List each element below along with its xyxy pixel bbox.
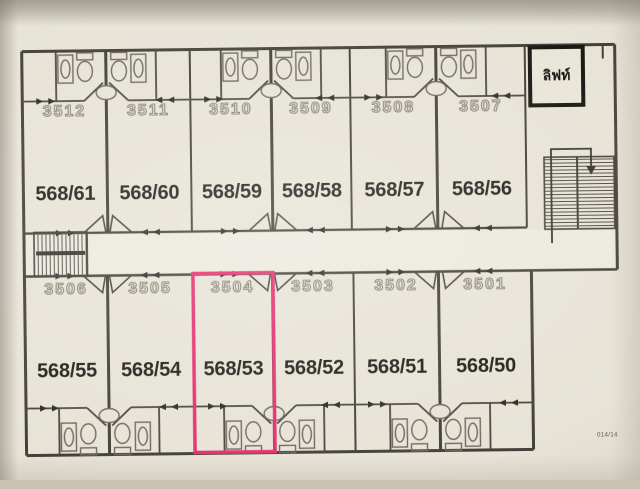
- room-number: 3510: [190, 101, 271, 120]
- unit-number: 568/60: [107, 182, 191, 206]
- unit-number: 568/55: [25, 360, 108, 384]
- room-number: 3503: [272, 278, 353, 297]
- elevator-label: ลิฟท์: [530, 47, 584, 106]
- unit-number: 568/58: [272, 180, 351, 204]
- room-3502: 3502 568/51: [353, 272, 440, 452]
- floor-plan: 3512 568/61 3511 568/60 3510 568/59 3509…: [0, 0, 640, 484]
- unit-number: 568/51: [354, 356, 439, 380]
- room-number: 3504: [192, 279, 272, 298]
- right-staircase: [544, 148, 615, 243]
- room-number: 3509: [271, 100, 350, 119]
- room-3511: 3511 568/60: [106, 50, 192, 233]
- room-number: 3502: [353, 277, 438, 296]
- room-3510: 3510 568/59: [190, 49, 273, 232]
- scanned-floorplan-photo: 3512 568/61 3511 568/60 3510 568/59 3509…: [0, 0, 640, 480]
- room-3503: 3503 568/52: [272, 273, 355, 453]
- room-3507: 3507 568/56: [436, 45, 527, 228]
- room-number: 3507: [436, 97, 525, 116]
- unit-number: 568/56: [437, 177, 526, 201]
- left-staircase: [34, 232, 88, 277]
- room-3509: 3509 568/58: [271, 48, 352, 231]
- room-number: 3506: [24, 281, 107, 300]
- room-number: 3501: [438, 275, 531, 294]
- unit-number: 568/59: [191, 181, 272, 205]
- unit-number: 568/54: [108, 359, 193, 383]
- unit-number: 568/57: [351, 179, 437, 203]
- room-number: 3512: [22, 103, 106, 122]
- unit-number: 568/53: [193, 358, 273, 382]
- unit-number: 568/61: [23, 183, 107, 207]
- room-3501: 3501 568/50: [438, 270, 533, 450]
- room-number: 3508: [350, 99, 436, 118]
- unit-number: 568/52: [273, 357, 354, 381]
- room-3506: 3506 568/55: [24, 276, 109, 456]
- room-3508: 3508 568/57: [350, 47, 438, 230]
- corner-note: 014/14: [578, 432, 636, 439]
- unit-number: 568/50: [439, 354, 532, 378]
- room-3505: 3505 568/54: [107, 275, 194, 455]
- room-3512: 3512 568/61: [22, 51, 108, 234]
- room-3504-highlighted: 3504 568/53: [192, 274, 274, 454]
- room-number: 3505: [107, 280, 192, 299]
- corridor: [26, 228, 615, 274]
- room-number: 3511: [106, 102, 190, 121]
